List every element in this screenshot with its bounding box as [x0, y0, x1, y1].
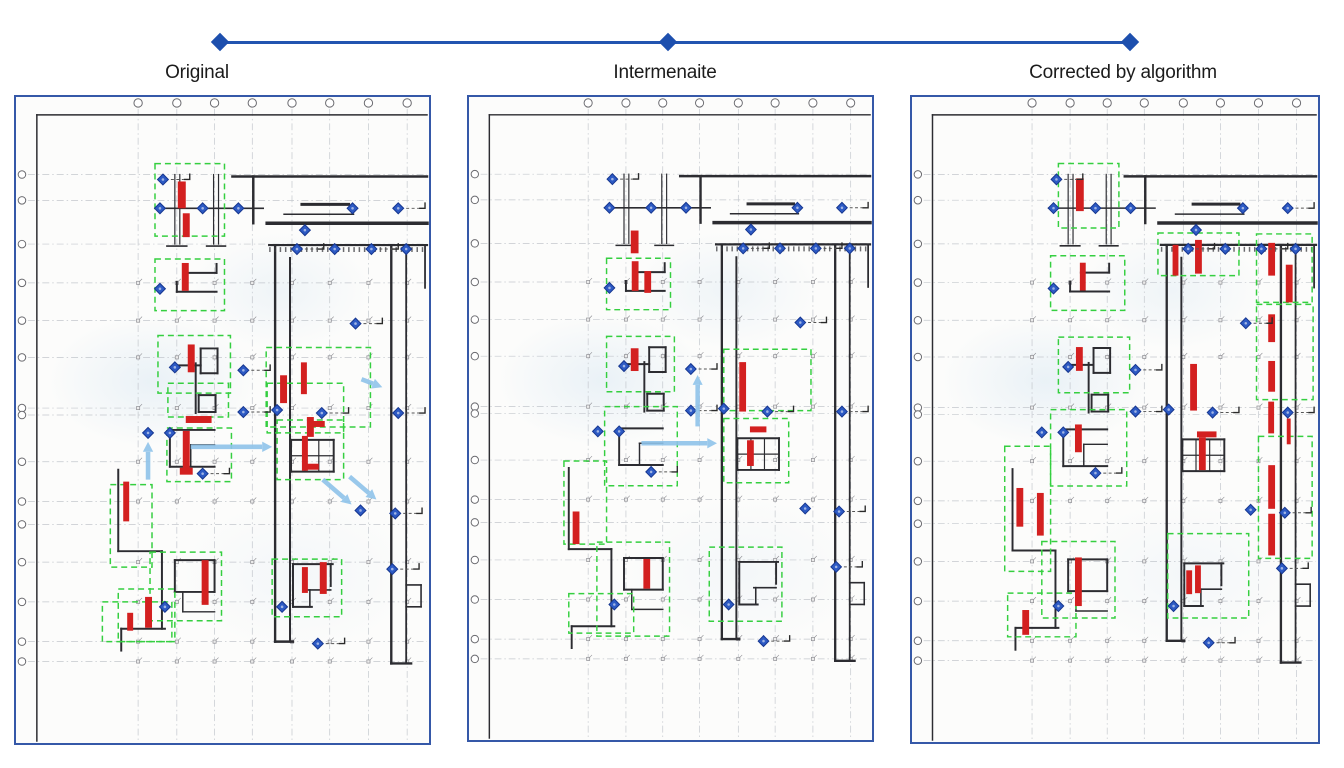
stage-label-original: Original — [165, 62, 229, 84]
timeline-diamond-icon — [211, 33, 229, 51]
grid-layer — [481, 109, 870, 738]
panel-corrected — [910, 95, 1320, 744]
floor-plan-original — [16, 97, 429, 743]
grid-layer — [924, 109, 1316, 740]
move-arrows-layer — [143, 379, 382, 505]
column-markers-layer — [137, 279, 412, 663]
grid-layer — [28, 109, 427, 741]
green-boxes-layer — [1005, 163, 1313, 636]
timeline-diamond-icon — [1121, 33, 1139, 51]
panel-intermediate — [467, 95, 874, 742]
column-markers-layer — [1030, 279, 1300, 663]
floor-plan-intermediate — [469, 97, 872, 740]
figure-stage: Original Intermenaite Corrected by algor… — [0, 0, 1344, 768]
stage-label-corrected: Corrected by algorithm — [1029, 62, 1217, 84]
green-boxes-layer — [564, 258, 811, 636]
timeline-diamond-icon — [659, 33, 677, 51]
move-arrows-layer — [641, 375, 717, 448]
stage-label-intermediate: Intermenaite — [613, 62, 716, 84]
floor-plan-corrected — [912, 97, 1318, 742]
column-markers-layer — [587, 278, 855, 660]
red-marks-layer — [1016, 178, 1292, 634]
panel-original — [14, 95, 431, 745]
